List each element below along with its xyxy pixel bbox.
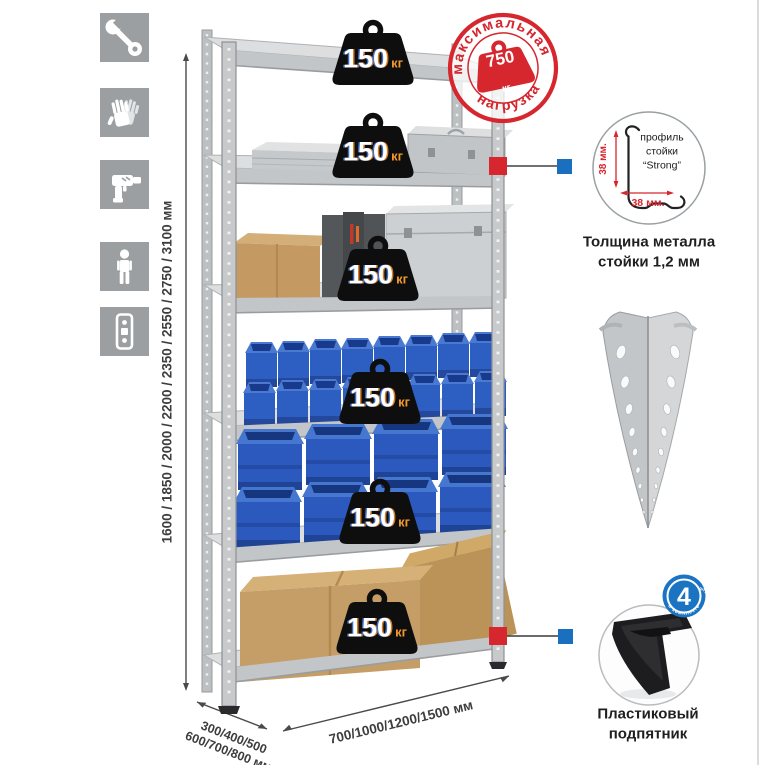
load-value: 150	[348, 262, 393, 289]
shelf-5-load-label: 150 кг	[350, 505, 410, 532]
badge-count: 4	[677, 583, 691, 611]
plastic-foot-left	[218, 706, 240, 714]
callout-marker-profile	[489, 157, 572, 175]
stamp-value: 750	[485, 48, 516, 71]
load-unit: кг	[391, 150, 403, 163]
shelf-4-load-label: 150 кг	[350, 385, 410, 412]
shelf-6-load-label: 150 кг	[347, 615, 407, 642]
load-unit: кг	[395, 626, 407, 639]
shelf-1-load-label: 150 кг	[343, 46, 403, 73]
corner-profile-photo	[600, 312, 696, 528]
load-unit: кг	[391, 57, 403, 70]
plastic-foot-right	[489, 662, 507, 669]
callout-marker-foot	[489, 627, 573, 645]
load-value: 150	[350, 385, 395, 412]
load-value: 150	[343, 139, 388, 166]
profile-annotation: профиль стойки “Strong”	[632, 131, 692, 174]
set-count-badge: 4 штуки в комплекте	[663, 575, 714, 618]
shelf-3-load-label: 150 кг	[348, 262, 408, 289]
load-unit: кг	[396, 273, 408, 286]
height-dimension-line	[183, 53, 189, 691]
foot-caption: Пластиковый подпятник	[548, 705, 748, 744]
shelf-2-load-label: 150 кг	[343, 139, 403, 166]
stamp-unit: кг	[492, 81, 522, 96]
load-value: 150	[350, 505, 395, 532]
shelving-product-infographic: максимальная нагрузка	[0, 0, 765, 765]
page-edge-line	[757, 0, 759, 765]
load-unit: кг	[398, 516, 410, 529]
load-value: 150	[347, 615, 392, 642]
load-unit: кг	[398, 396, 410, 409]
svg-text:38 мм.: 38 мм.	[631, 197, 664, 209]
profile-caption: Толщина металла стойки 1,2 мм	[549, 233, 749, 272]
cardboard-box-small	[234, 233, 334, 302]
load-value: 150	[343, 46, 388, 73]
foot-detail-circle: 4 штуки в комплекте	[599, 575, 713, 706]
height-dimension-label: 1600 / 1850 / 2000 / 2200 / 2350 / 2550 …	[160, 132, 175, 612]
svg-text:38 мм.: 38 мм.	[598, 143, 609, 175]
